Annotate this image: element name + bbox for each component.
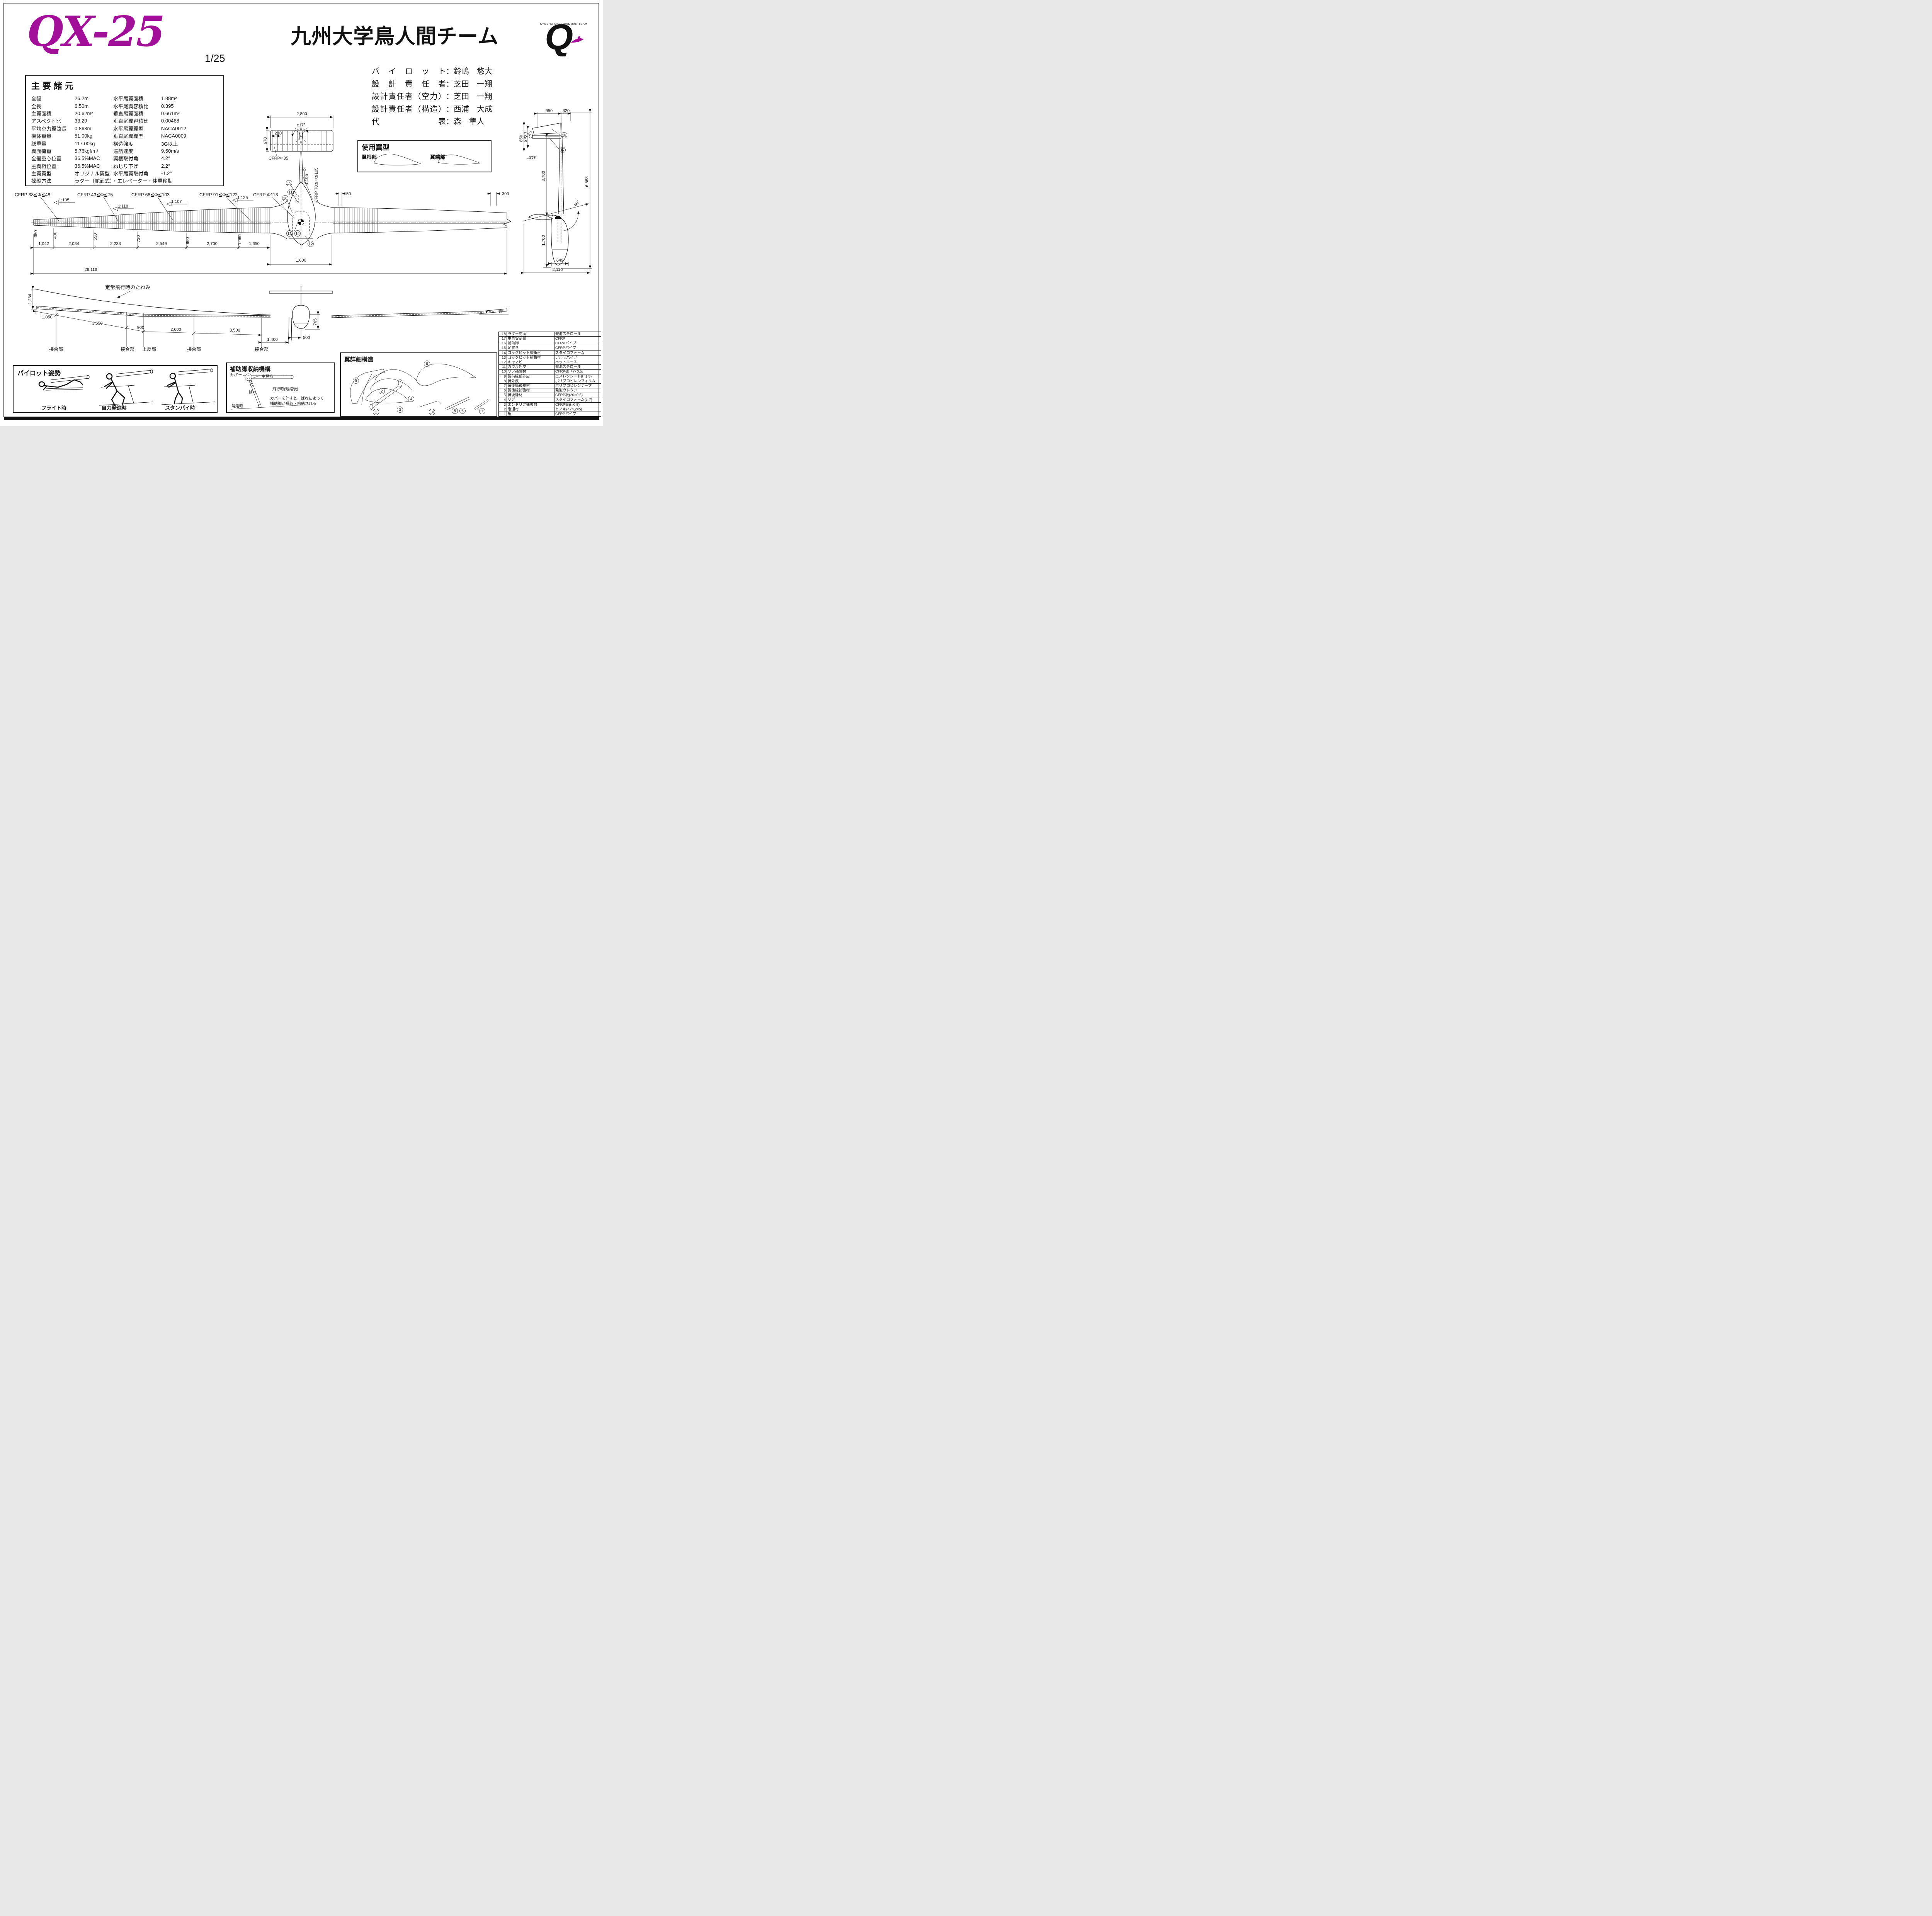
svg-text:16: 16 bbox=[283, 197, 287, 201]
label-wing-spar-2: CFRP 43≦Φ≦75 bbox=[77, 192, 113, 197]
label-boom-spar: CFRP 70≦Φ≦105 bbox=[314, 167, 319, 202]
svg-text:10: 10 bbox=[430, 410, 434, 415]
dim-span-6: 1,650 bbox=[249, 242, 260, 246]
dim-chord-400: 400 bbox=[53, 232, 58, 239]
svg-text:2: 2 bbox=[381, 390, 383, 394]
label-joint-3: 接合部 bbox=[187, 346, 201, 352]
dim-front-3650: 3,650 bbox=[92, 321, 103, 326]
label-wing-spar-4: CFRP 91≦Φ≦122 bbox=[199, 192, 238, 197]
dim-chord-730: 730 bbox=[136, 235, 141, 242]
drawing-sheet: QX-25 1/25 九州大学鳥人間チーム Q KYUSHU UNIV BIRD… bbox=[0, 0, 603, 426]
topview-callouts: 15 11 16 13 ， 14 12 bbox=[282, 180, 314, 247]
label-joint-4: 接合部 bbox=[255, 346, 269, 352]
wing-detail-callouts: 9 8 2 4 1 3 10 5 ， 6 7 bbox=[353, 361, 485, 415]
dimension-text-layer: 2,800 210 ±17° 670 CFRPΦ35 1:105 CFRP 70… bbox=[0, 0, 603, 426]
dim-chord-960: 960 bbox=[185, 237, 190, 244]
dim-total-span: 26,116 bbox=[85, 267, 97, 272]
svg-text:6: 6 bbox=[461, 409, 464, 413]
dim-wing-angle: 80° bbox=[573, 199, 581, 208]
label-taper-2: 1:118 bbox=[118, 204, 128, 209]
label-dihedral-joint: 上反部 bbox=[142, 346, 156, 352]
svg-text:11: 11 bbox=[289, 191, 293, 195]
dim-front-900: 900 bbox=[137, 325, 144, 330]
dim-boom-length: 3,700 bbox=[541, 171, 546, 182]
dim-span-5: 2,700 bbox=[207, 242, 218, 246]
dim-tip-deflection: 1,234 bbox=[28, 294, 32, 305]
label-wing-spar-5: CFRP Φ113 bbox=[253, 192, 278, 197]
svg-text:12: 12 bbox=[308, 242, 313, 247]
svg-text:4: 4 bbox=[410, 397, 412, 402]
dim-chord-550: 550 bbox=[93, 233, 98, 240]
dim-front-3500: 3,500 bbox=[230, 328, 240, 333]
svg-text:7: 7 bbox=[481, 410, 483, 414]
dim-chord-1060: 1,060 bbox=[238, 234, 242, 245]
dim-htail-span: 2,800 bbox=[296, 112, 307, 116]
dim-leg-center: 500 bbox=[303, 335, 310, 340]
label-joint-1: 接合部 bbox=[49, 346, 63, 352]
dim-htail-rib-pitch: 210 bbox=[275, 131, 282, 136]
dim-elevator-throw: ±10° bbox=[527, 155, 536, 160]
dim-rudder-chord: 950 bbox=[546, 109, 553, 113]
dim-pod-width: 649 bbox=[556, 258, 563, 263]
dim-pod-below: 765 bbox=[313, 318, 318, 325]
svg-text:3: 3 bbox=[399, 408, 401, 412]
dim-leg-offset: 1,400 bbox=[267, 337, 278, 342]
dim-total-height: 6,568 bbox=[585, 176, 589, 187]
dim-aft: 320 bbox=[563, 109, 570, 113]
sideview-callouts: 18 17 bbox=[560, 133, 567, 153]
svg-text:15: 15 bbox=[287, 182, 291, 186]
svg-text:18: 18 bbox=[562, 134, 566, 138]
svg-text:，: ， bbox=[457, 410, 461, 414]
dim-span-4: 2,549 bbox=[156, 242, 167, 246]
label-wing-spar-1: CFRP 38≦Φ≦48 bbox=[15, 192, 50, 197]
label-boom-taper: 1:105 bbox=[304, 174, 309, 185]
svg-text:9: 9 bbox=[355, 379, 357, 383]
dim-total-length: 2,116 bbox=[553, 267, 563, 272]
label-taper-1: 1:105 bbox=[59, 198, 70, 202]
dim-span-1: 1,042 bbox=[38, 242, 49, 246]
svg-text:5: 5 bbox=[454, 409, 456, 413]
dim-rib-pitch-outer: 300 bbox=[502, 192, 509, 196]
dim-front-1050: 1,050 bbox=[42, 315, 53, 320]
dim-pod-depth: 1,700 bbox=[541, 235, 546, 246]
dim-fuselage-width: 1,600 bbox=[296, 258, 306, 263]
svg-text:14: 14 bbox=[295, 232, 300, 236]
svg-text:1: 1 bbox=[375, 410, 377, 415]
label-taper-3: 1:107 bbox=[171, 199, 182, 204]
label-deflection-note: 定常飛行時のたわみ bbox=[105, 284, 150, 290]
dim-height-inner: 670 bbox=[523, 135, 528, 142]
label-wing-spar-3: CFRP 68≦Φ≦103 bbox=[131, 192, 170, 197]
label-taper-4: 1:125 bbox=[237, 196, 248, 200]
dim-dihedral-tip: 7° bbox=[498, 309, 504, 314]
label-htail-spar: CFRPΦ35 bbox=[269, 156, 288, 161]
dim-front-2600: 2,600 bbox=[170, 327, 181, 332]
svg-text:8: 8 bbox=[426, 362, 428, 366]
dim-span-2: 2,084 bbox=[68, 242, 79, 246]
dim-htail-chord: 670 bbox=[263, 137, 268, 144]
dim-span-3: 2,233 bbox=[110, 242, 121, 246]
dim-rudder-throw: ±17° bbox=[297, 123, 306, 128]
label-joint-2: 接合部 bbox=[121, 346, 134, 352]
svg-text:17: 17 bbox=[560, 148, 565, 153]
dim-rib-pitch-inner: 150 bbox=[344, 192, 351, 196]
dim-chord-350: 350 bbox=[34, 230, 38, 237]
